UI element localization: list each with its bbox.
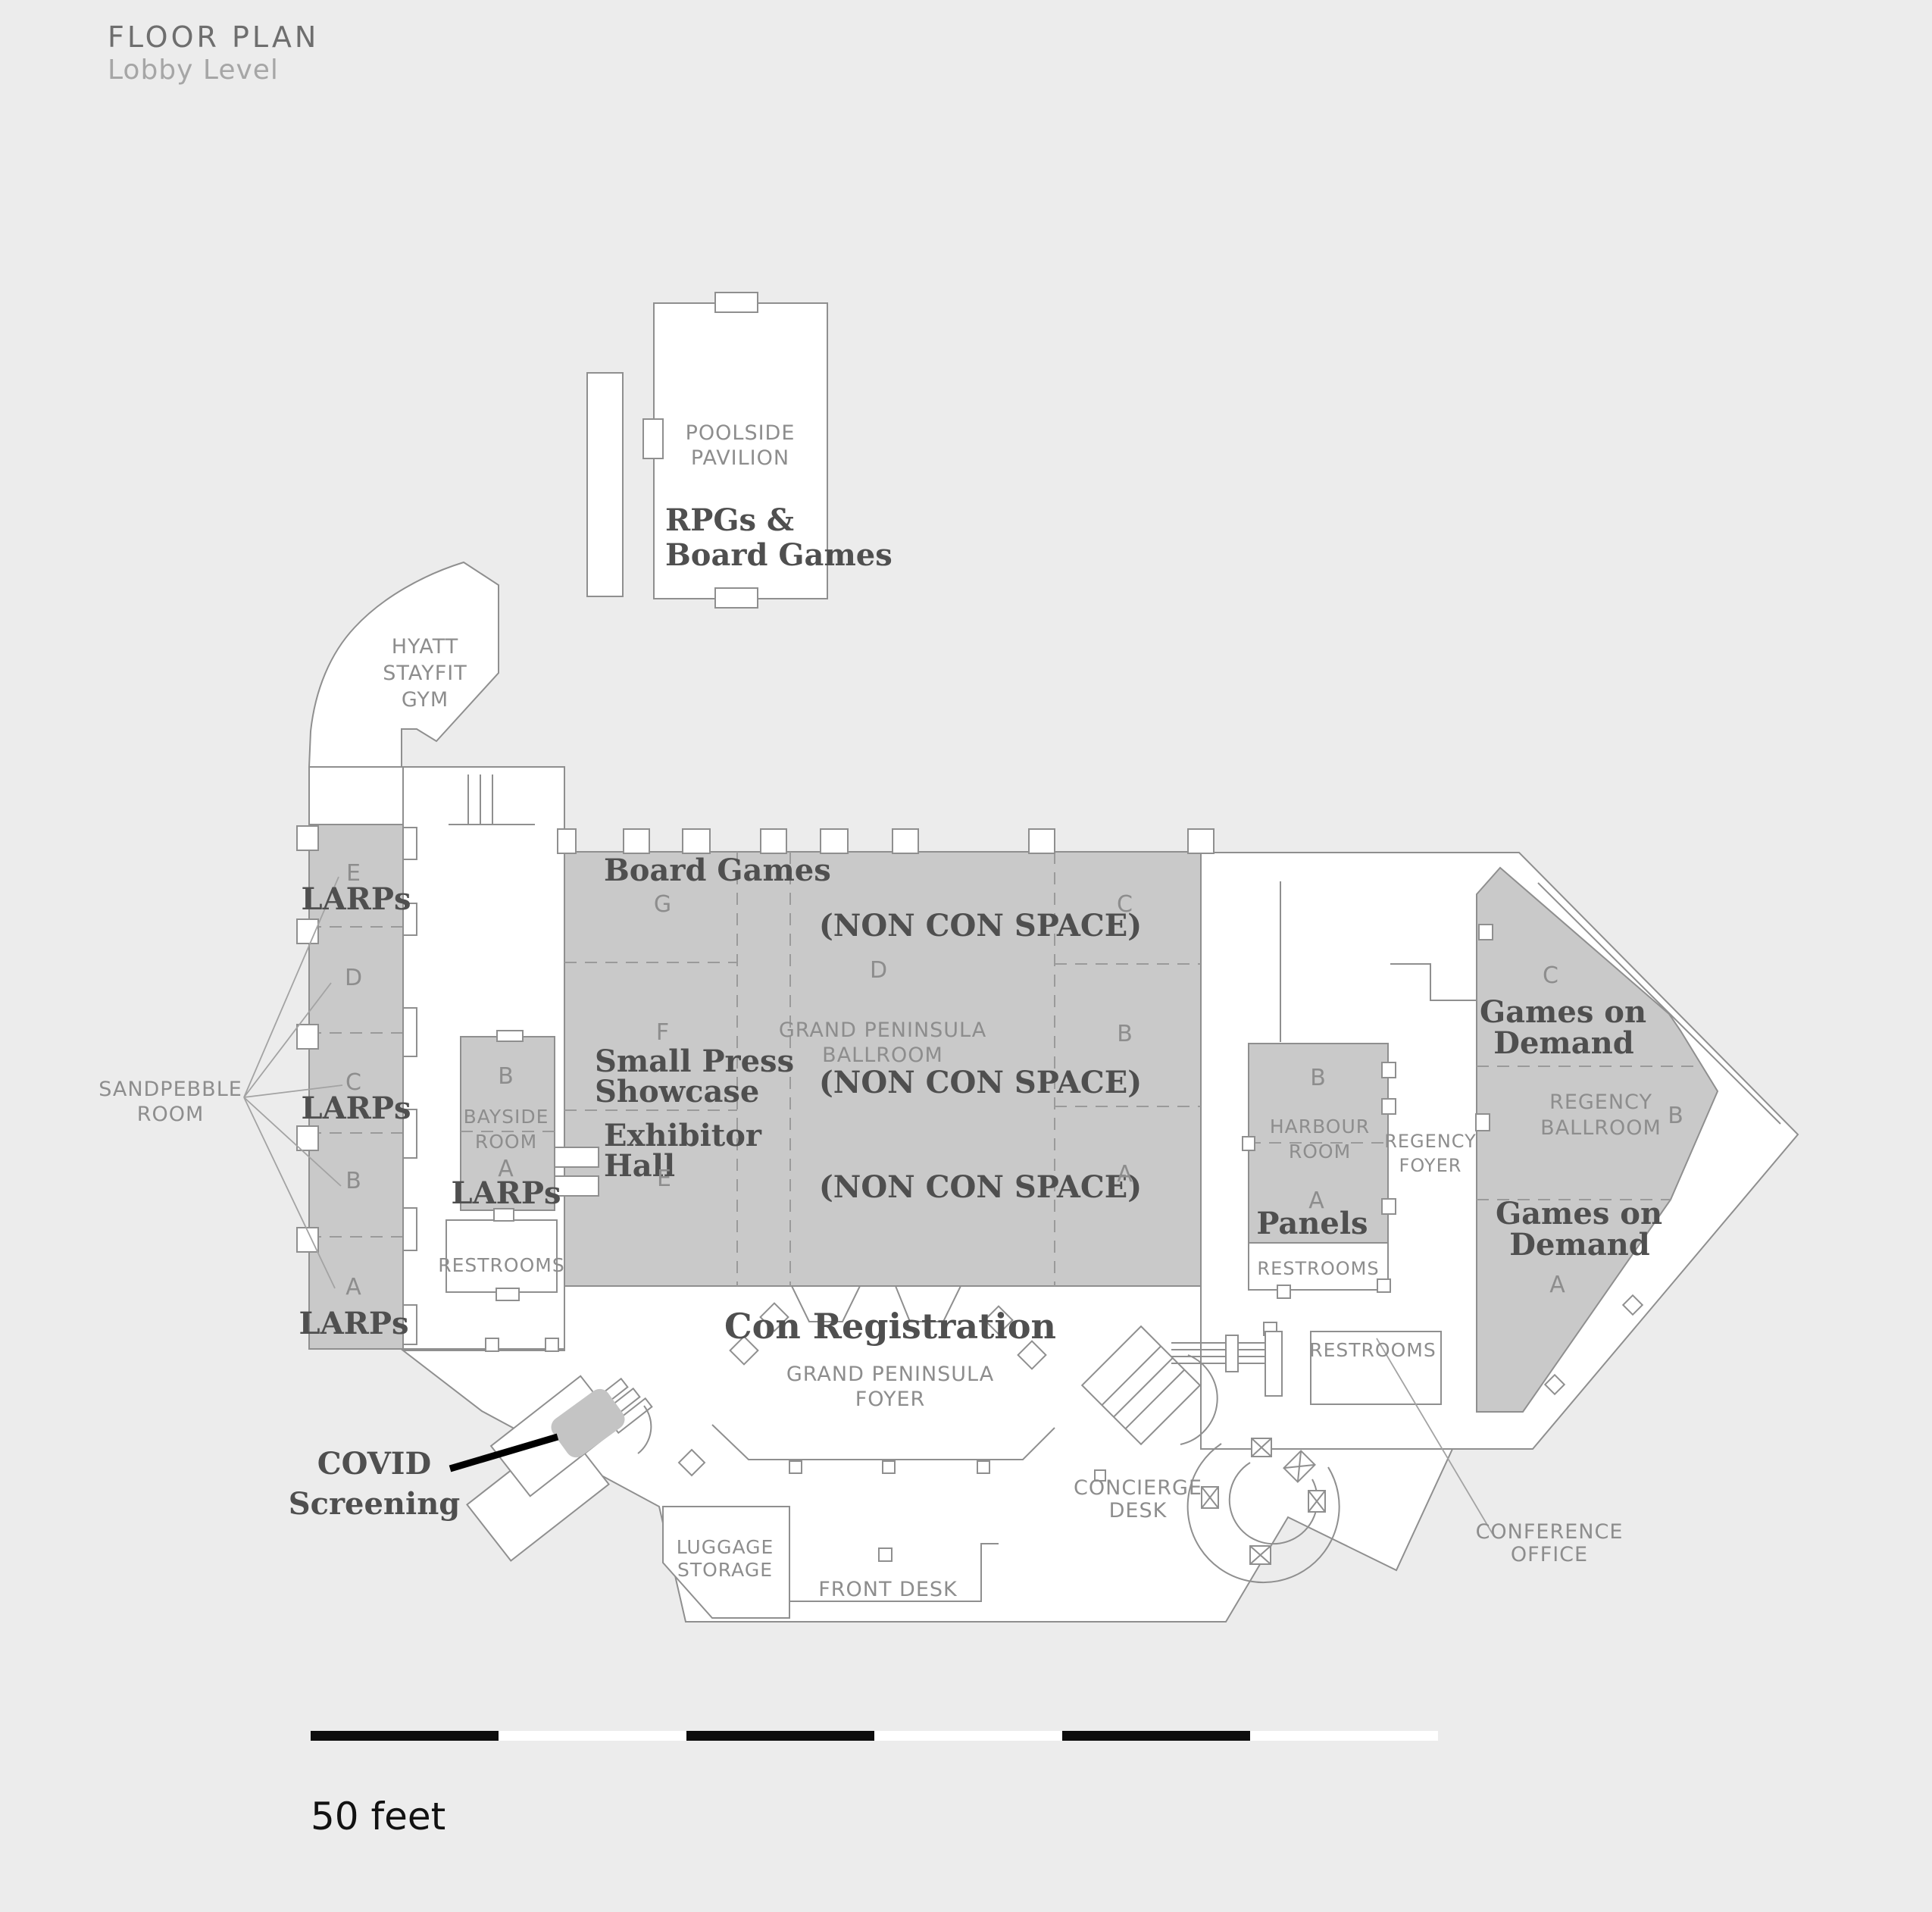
page-title: FLOOR PLAN <box>108 20 319 54</box>
section-letter: A <box>1117 1161 1133 1188</box>
activity-label: LARPs <box>299 1306 409 1341</box>
column-marker <box>546 1338 558 1351</box>
activity-label: LARPs <box>452 1175 561 1211</box>
door-marker <box>643 419 663 458</box>
door-marker <box>715 293 758 312</box>
section-letter: B <box>498 1063 514 1090</box>
activity-label: Demand <box>1509 1227 1649 1263</box>
harbour-name: ROOM <box>1289 1141 1351 1163</box>
door-marker <box>761 829 786 853</box>
scale-bar-label: 50 feet <box>311 1795 445 1838</box>
door-marker <box>1243 1137 1255 1150</box>
foyer-name: GRAND PENINSULA <box>786 1363 994 1386</box>
door-marker <box>1377 1279 1390 1292</box>
door-marker <box>558 829 576 853</box>
door-marker <box>297 826 318 850</box>
elevator <box>1308 1491 1325 1512</box>
luggage-label: STORAGE <box>677 1559 773 1581</box>
gym-name: HYATT <box>392 635 459 659</box>
door-marker <box>403 1208 417 1250</box>
harbour-name: HARBOUR <box>1270 1116 1370 1137</box>
door-marker <box>496 1288 519 1300</box>
scale-bar-segment <box>499 1731 686 1741</box>
escalator-landing <box>1265 1332 1282 1396</box>
door-marker <box>1277 1285 1290 1298</box>
door-marker <box>403 828 417 859</box>
section-letter: B <box>1310 1065 1327 1091</box>
section-letter: B <box>345 1168 362 1194</box>
column-marker <box>883 1461 895 1473</box>
floor-plan-canvas: FLOOR PLAN Lobby Level POOLSIDE PAVILION… <box>0 0 1932 1912</box>
door-marker <box>893 829 918 853</box>
front-desk-label: FRONT DESK <box>818 1578 958 1601</box>
conference-office-label: OFFICE <box>1511 1543 1588 1566</box>
sandpebble-name: SANDPEBBLE <box>98 1078 242 1101</box>
section-letter: G <box>654 891 672 918</box>
section-letter: F <box>656 1019 670 1046</box>
regency-foyer-name: REGENCY <box>1384 1131 1477 1152</box>
luggage-label: LUGGAGE <box>677 1536 774 1558</box>
page-subtitle: Lobby Level <box>108 55 279 86</box>
activity-label: Board Games <box>604 853 831 888</box>
ballroom-name: BALLROOM <box>822 1044 943 1067</box>
pool-walkway <box>587 373 623 596</box>
foyer-name: FOYER <box>855 1388 926 1411</box>
door-marker <box>497 1031 523 1041</box>
door-marker <box>821 829 848 853</box>
activity-label: LARPs <box>302 881 411 917</box>
door-marker <box>683 829 710 853</box>
covid-label: COVID <box>317 1446 431 1482</box>
concierge-label: DESK <box>1109 1499 1168 1522</box>
activity-label: Showcase <box>595 1074 759 1109</box>
activity-label: Demand <box>1493 1025 1633 1061</box>
poolside-name: PAVILION <box>691 446 789 470</box>
section-letter: B <box>1117 1021 1133 1047</box>
section-letter: D <box>870 957 888 984</box>
restrooms-label: RESTROOMS <box>1309 1339 1436 1361</box>
column-marker <box>879 1548 892 1561</box>
scale-bar-segment <box>1250 1731 1438 1741</box>
activity-label: Panels <box>1256 1206 1368 1241</box>
door-marker <box>624 829 649 853</box>
con-registration-label: Con Registration <box>724 1306 1056 1347</box>
door-marker <box>297 1025 318 1049</box>
covid-label: Screening <box>289 1486 461 1522</box>
gym-name: STAYFIT <box>383 662 467 685</box>
column-marker <box>789 1461 802 1473</box>
door-marker <box>555 1176 599 1196</box>
section-letter: C <box>1117 891 1133 918</box>
scale-bar-segment <box>874 1731 1062 1741</box>
poolside-name: POOLSIDE <box>686 421 796 445</box>
non-con-label: (NON CON SPACE) <box>819 908 1142 943</box>
door-marker <box>1382 1062 1396 1078</box>
restrooms-label: RESTROOMS <box>1257 1258 1379 1279</box>
activity-label: LARPs <box>302 1091 411 1126</box>
door-marker <box>1479 925 1493 940</box>
non-con-label: (NON CON SPACE) <box>819 1169 1142 1205</box>
sandpebble-name: ROOM <box>137 1103 205 1126</box>
regency-name: BALLROOM <box>1540 1116 1662 1140</box>
door-marker <box>297 1126 318 1150</box>
bayside-name: ROOM <box>475 1131 537 1153</box>
ballroom-name: GRAND PENINSULA <box>779 1019 986 1042</box>
section-letter: A <box>1549 1272 1566 1298</box>
door-marker <box>403 1008 417 1056</box>
door-marker <box>555 1147 599 1167</box>
door-marker <box>1476 1114 1490 1131</box>
section-letter: B <box>1668 1103 1684 1129</box>
elevator <box>1252 1438 1271 1457</box>
escalator-landing <box>1226 1335 1238 1372</box>
door-marker <box>715 588 758 608</box>
poolside-activity: Board Games <box>665 537 893 573</box>
section-letter: D <box>345 965 363 991</box>
regency-name: REGENCY <box>1549 1091 1652 1114</box>
door-marker <box>1382 1099 1396 1114</box>
gym-name: GYM <box>402 688 449 712</box>
non-con-label: (NON CON SPACE) <box>819 1065 1142 1100</box>
elevator <box>1250 1546 1271 1564</box>
door-marker <box>1382 1199 1396 1214</box>
section-letter: A <box>345 1274 362 1300</box>
scale-bar-segment <box>1062 1731 1250 1741</box>
conference-office-label: CONFERENCE <box>1476 1520 1624 1544</box>
restrooms-label: RESTROOMS <box>438 1254 564 1276</box>
column-marker <box>977 1461 989 1473</box>
activity-label: Games on <box>1480 994 1646 1030</box>
scale-bar-segment <box>311 1731 499 1741</box>
door-marker <box>1029 829 1055 853</box>
scale-bar-segment <box>686 1731 874 1741</box>
section-letter: C <box>1543 962 1559 989</box>
section-letter: E <box>657 1166 672 1192</box>
elevator <box>1202 1487 1218 1508</box>
door-marker <box>1188 829 1214 853</box>
activity-label: Games on <box>1496 1196 1662 1231</box>
stair-lobby <box>309 767 403 826</box>
poolside-activity: RPGs & <box>665 502 794 538</box>
bayside-name: BAYSIDE <box>464 1106 549 1128</box>
floor-plan-page: FLOOR PLAN Lobby Level POOLSIDE PAVILION… <box>0 0 1932 1912</box>
concierge-label: CONCIERGE <box>1074 1476 1202 1500</box>
column-marker <box>486 1338 499 1351</box>
regency-foyer-name: FOYER <box>1399 1155 1462 1176</box>
